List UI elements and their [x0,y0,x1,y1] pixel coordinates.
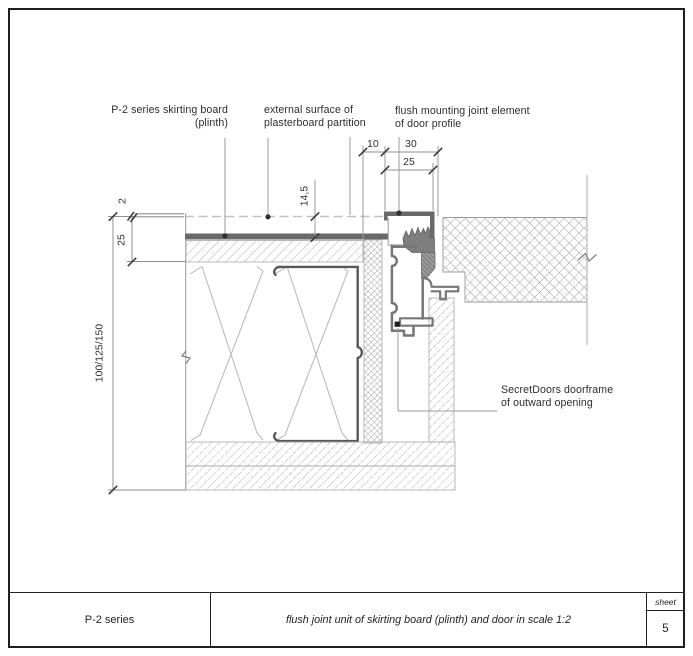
surface-label-line1: external surface of [264,104,366,117]
doorframe-label-line2: of outward opening [501,397,613,410]
dim-30: 30 [393,139,429,150]
metal-stud-profile [274,267,362,441]
joint-label-line2: of door profile [395,118,530,131]
drawing-title-cell: flush joint unit of skirting board (plin… [211,593,646,646]
drawing-sheet: P-2 series skirting board (plinth) exter… [0,0,693,656]
wall-section [443,175,597,345]
series-cell: P-2 series [9,593,211,646]
title-block: P-2 series flush joint unit of skirting … [9,592,684,646]
sheet-number: 5 [647,611,684,646]
joint-element-label: flush mounting joint element of door pro… [395,105,530,131]
skirting-board-label: P-2 series skirting board (plinth) [96,104,228,130]
leader-lines [225,137,497,411]
dim-2: 2 [118,198,129,204]
skirting-label-line2: (plinth) [96,117,228,130]
series-text: P-2 series [85,614,135,626]
dim-plinth-heights: 100/125/150 [95,324,106,382]
doorframe-label-line1: SecretDoors doorframe [501,384,613,397]
skirting-label-line1: P-2 series skirting board [96,104,228,117]
doorframe-label: SecretDoors doorframe of outward opening [501,384,613,410]
external-surface-label: external surface of plasterboard partiti… [264,104,366,130]
dim-10: 10 [362,139,384,150]
dim-25-left: 25 [117,234,128,246]
dim-25-top: 25 [391,157,427,168]
dimension-lines [108,152,438,490]
skirting-board-bar [185,234,388,240]
drawing-title-text: flush joint unit of skirting board (plin… [286,614,571,626]
insulation-infill [190,267,348,441]
joint-label-line1: flush mounting joint element [395,105,530,118]
gasket-teeth [403,227,435,253]
dim-14-5: 14,5 [300,186,311,206]
joint-element-edge [430,216,435,238]
surface-label-line2: plasterboard partition [264,117,366,130]
doorframe-leader-anchor [395,322,400,327]
sheet-cell: sheet 5 [646,593,684,646]
sheet-label: sheet [647,593,684,611]
